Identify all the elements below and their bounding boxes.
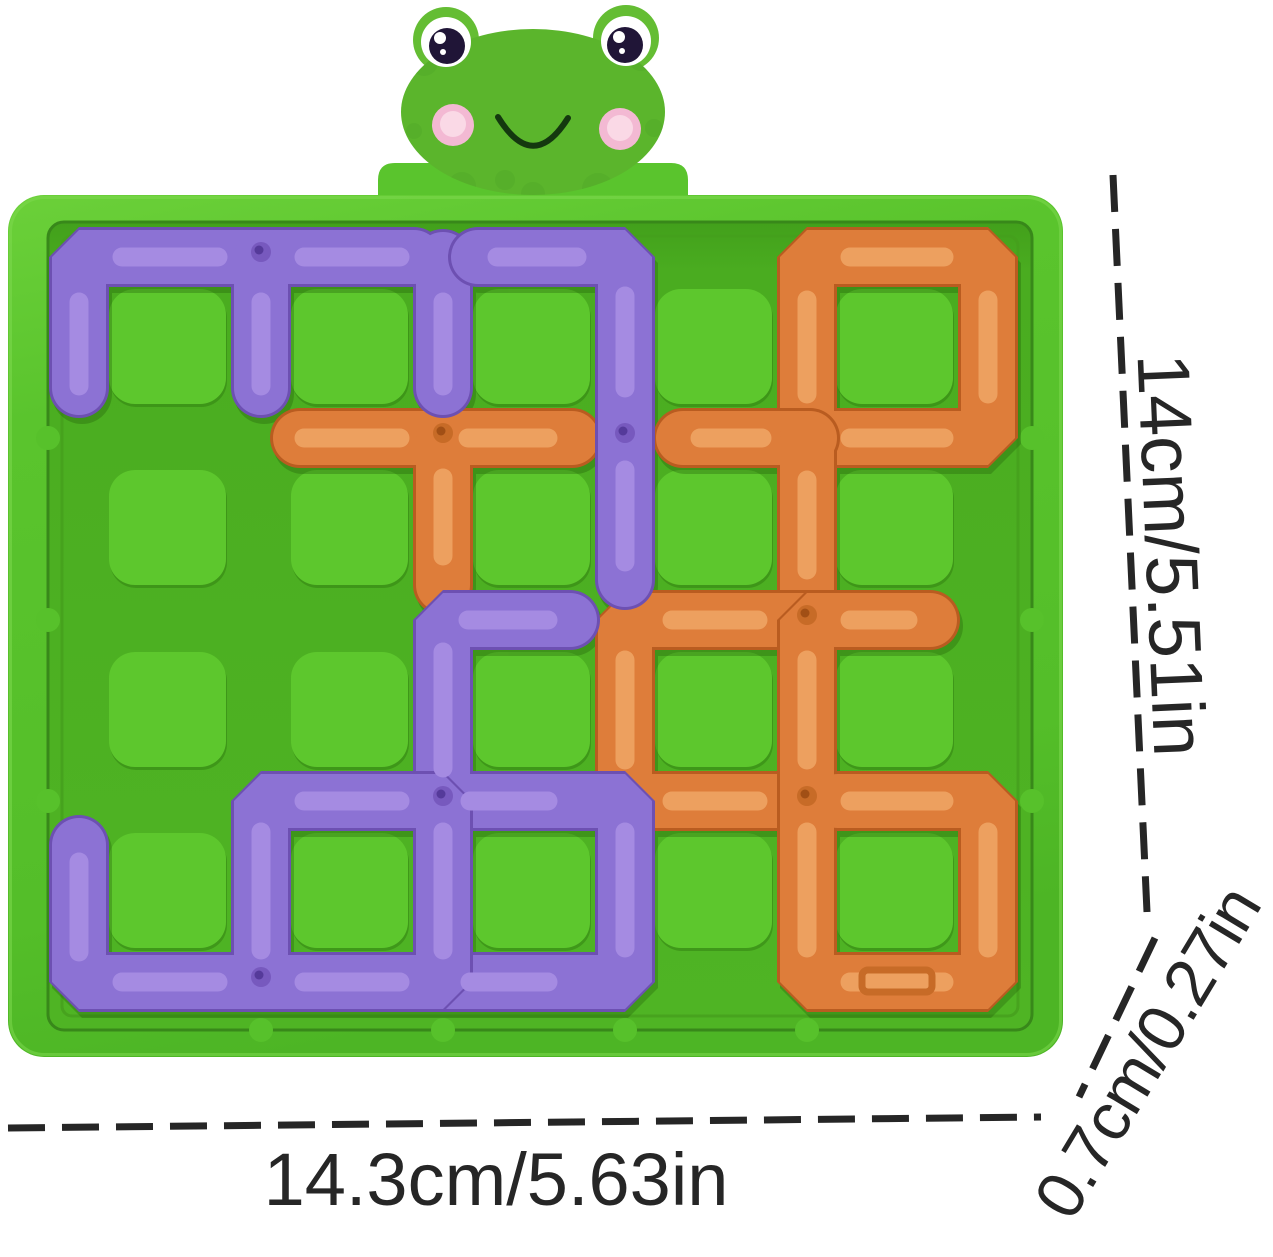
svg-text:14cm/5.51in: 14cm/5.51in [1122, 352, 1222, 758]
svg-text:14.3cm/5.63in: 14.3cm/5.63in [264, 1138, 729, 1221]
